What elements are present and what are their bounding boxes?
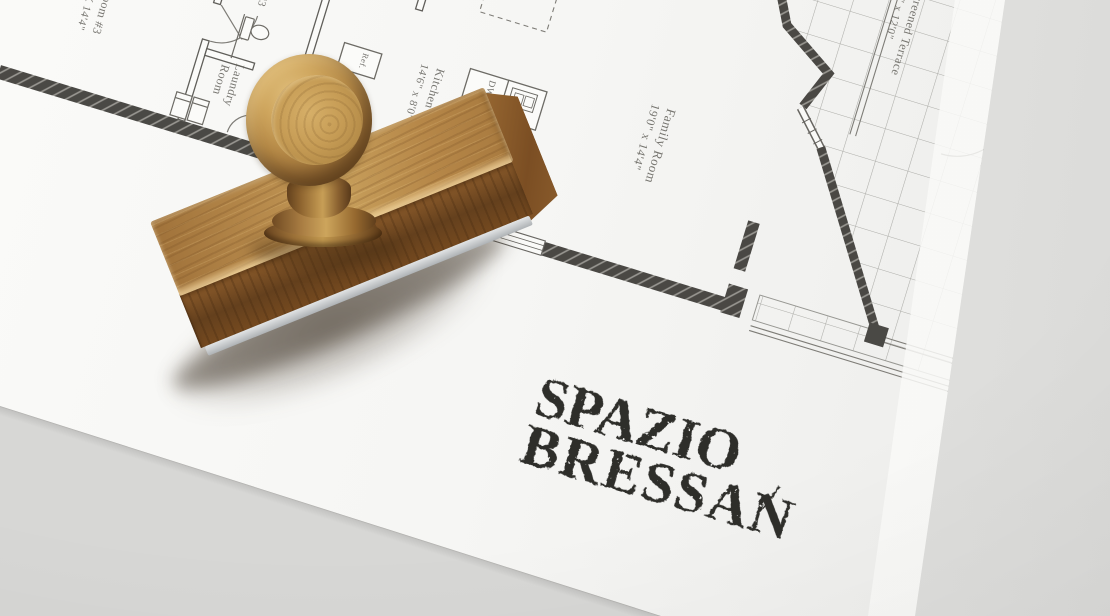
stamp-mockup-scene: Bedroom #3 11'4" X 14'4" Bath #3 Laundry… [0, 0, 1110, 616]
room-label-bath3-name: Bath #3 [255, 0, 278, 8]
kitchen-cabinets-dashed [480, 0, 560, 32]
terrace-corner-post [720, 284, 748, 319]
terrace-corner-stub [734, 220, 760, 271]
